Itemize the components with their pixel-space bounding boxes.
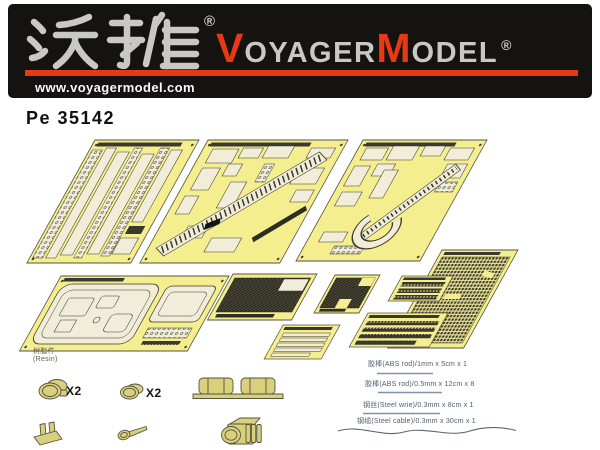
material-item-abs-rod-1mm: 胶棒(ABS rod)/1mm x 5cm x 1 (368, 359, 467, 369)
resin-label: 树脂件 (Resin) (33, 348, 58, 363)
resin-label-en: (Resin) (33, 356, 58, 364)
resin-label-cn: 树脂件 (33, 348, 58, 356)
quantity-label-x2-b: X2 (146, 386, 162, 400)
product-sheet: 沃雅 (0, 0, 600, 450)
resin-part-cluster (222, 418, 262, 444)
material-item-steel-cable: 钢缆(Steel cable)/0.3mm x 30cm x 1 (357, 416, 476, 426)
parts-illustration (0, 0, 600, 450)
pe-fret-grille-b (314, 275, 380, 313)
steel-cable-wave (338, 428, 516, 434)
resin-part-bracket (34, 422, 62, 445)
resin-part-hook (117, 427, 147, 442)
resin-part-drum-large (39, 380, 67, 400)
material-item-abs-rod-05mm: 胶棒(ABS rod)/0.5mm x 12cm x 8 (365, 379, 474, 389)
pe-fret-strips-b (264, 325, 340, 359)
quantity-label-x2-a: X2 (66, 384, 82, 398)
pe-fret-engine-deck (19, 276, 229, 351)
resin-part-box-rail (193, 378, 283, 399)
resin-part-drum-small (121, 384, 144, 399)
material-item-steel-wire: 钢丝(Steel wrie)/0.3mm x 8cm x 1 (363, 400, 474, 410)
